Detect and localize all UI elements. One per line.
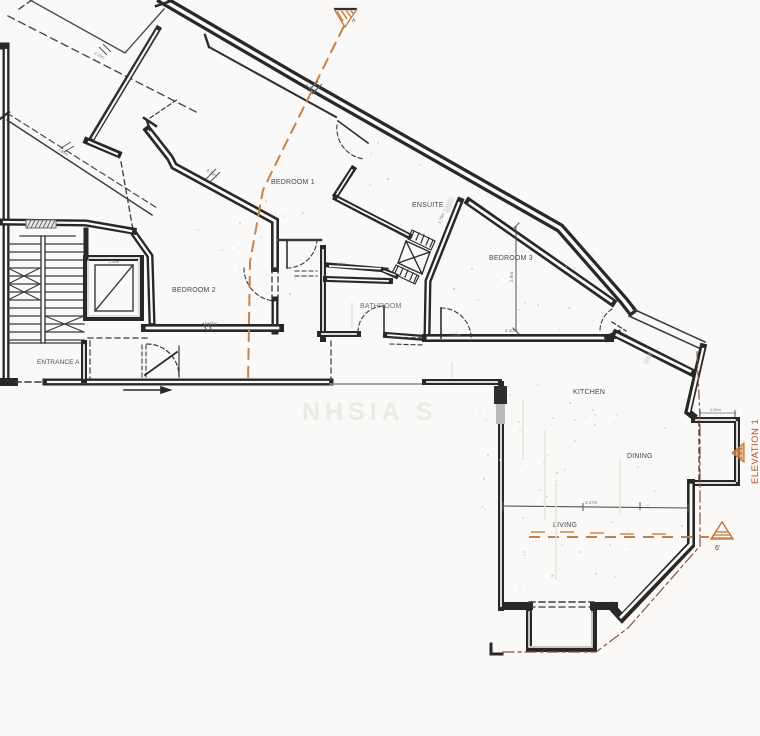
svg-text:1.05m: 1.05m — [450, 332, 462, 337]
svg-text:KITCHEN: KITCHEN — [573, 389, 605, 396]
svg-text:ENSUITE: ENSUITE — [412, 202, 444, 209]
svg-text:5.45m: 5.45m — [205, 321, 218, 326]
svg-text:3.47m: 3.47m — [585, 500, 598, 505]
svg-text:4.10m: 4.10m — [505, 328, 518, 333]
svg-text:BATHROOM: BATHROOM — [360, 303, 402, 310]
svg-text:NHSIA S: NHSIA S — [302, 398, 437, 426]
svg-text:6': 6' — [715, 545, 720, 552]
svg-text:1.35m: 1.35m — [108, 259, 120, 264]
svg-text:1.5m: 1.5m — [337, 261, 347, 266]
svg-text:1.50m: 1.50m — [710, 407, 722, 412]
svg-text:ENTRANCE A: ENTRANCE A — [37, 359, 80, 366]
svg-text:2.9m: 2.9m — [509, 272, 514, 282]
svg-text:BEDROOM 3: BEDROOM 3 — [489, 255, 533, 262]
svg-text:ELEVATION 1: ELEVATION 1 — [750, 419, 760, 484]
svg-text:DINING: DINING — [627, 453, 653, 460]
svg-text:BEDROOM 2: BEDROOM 2 — [172, 287, 216, 294]
